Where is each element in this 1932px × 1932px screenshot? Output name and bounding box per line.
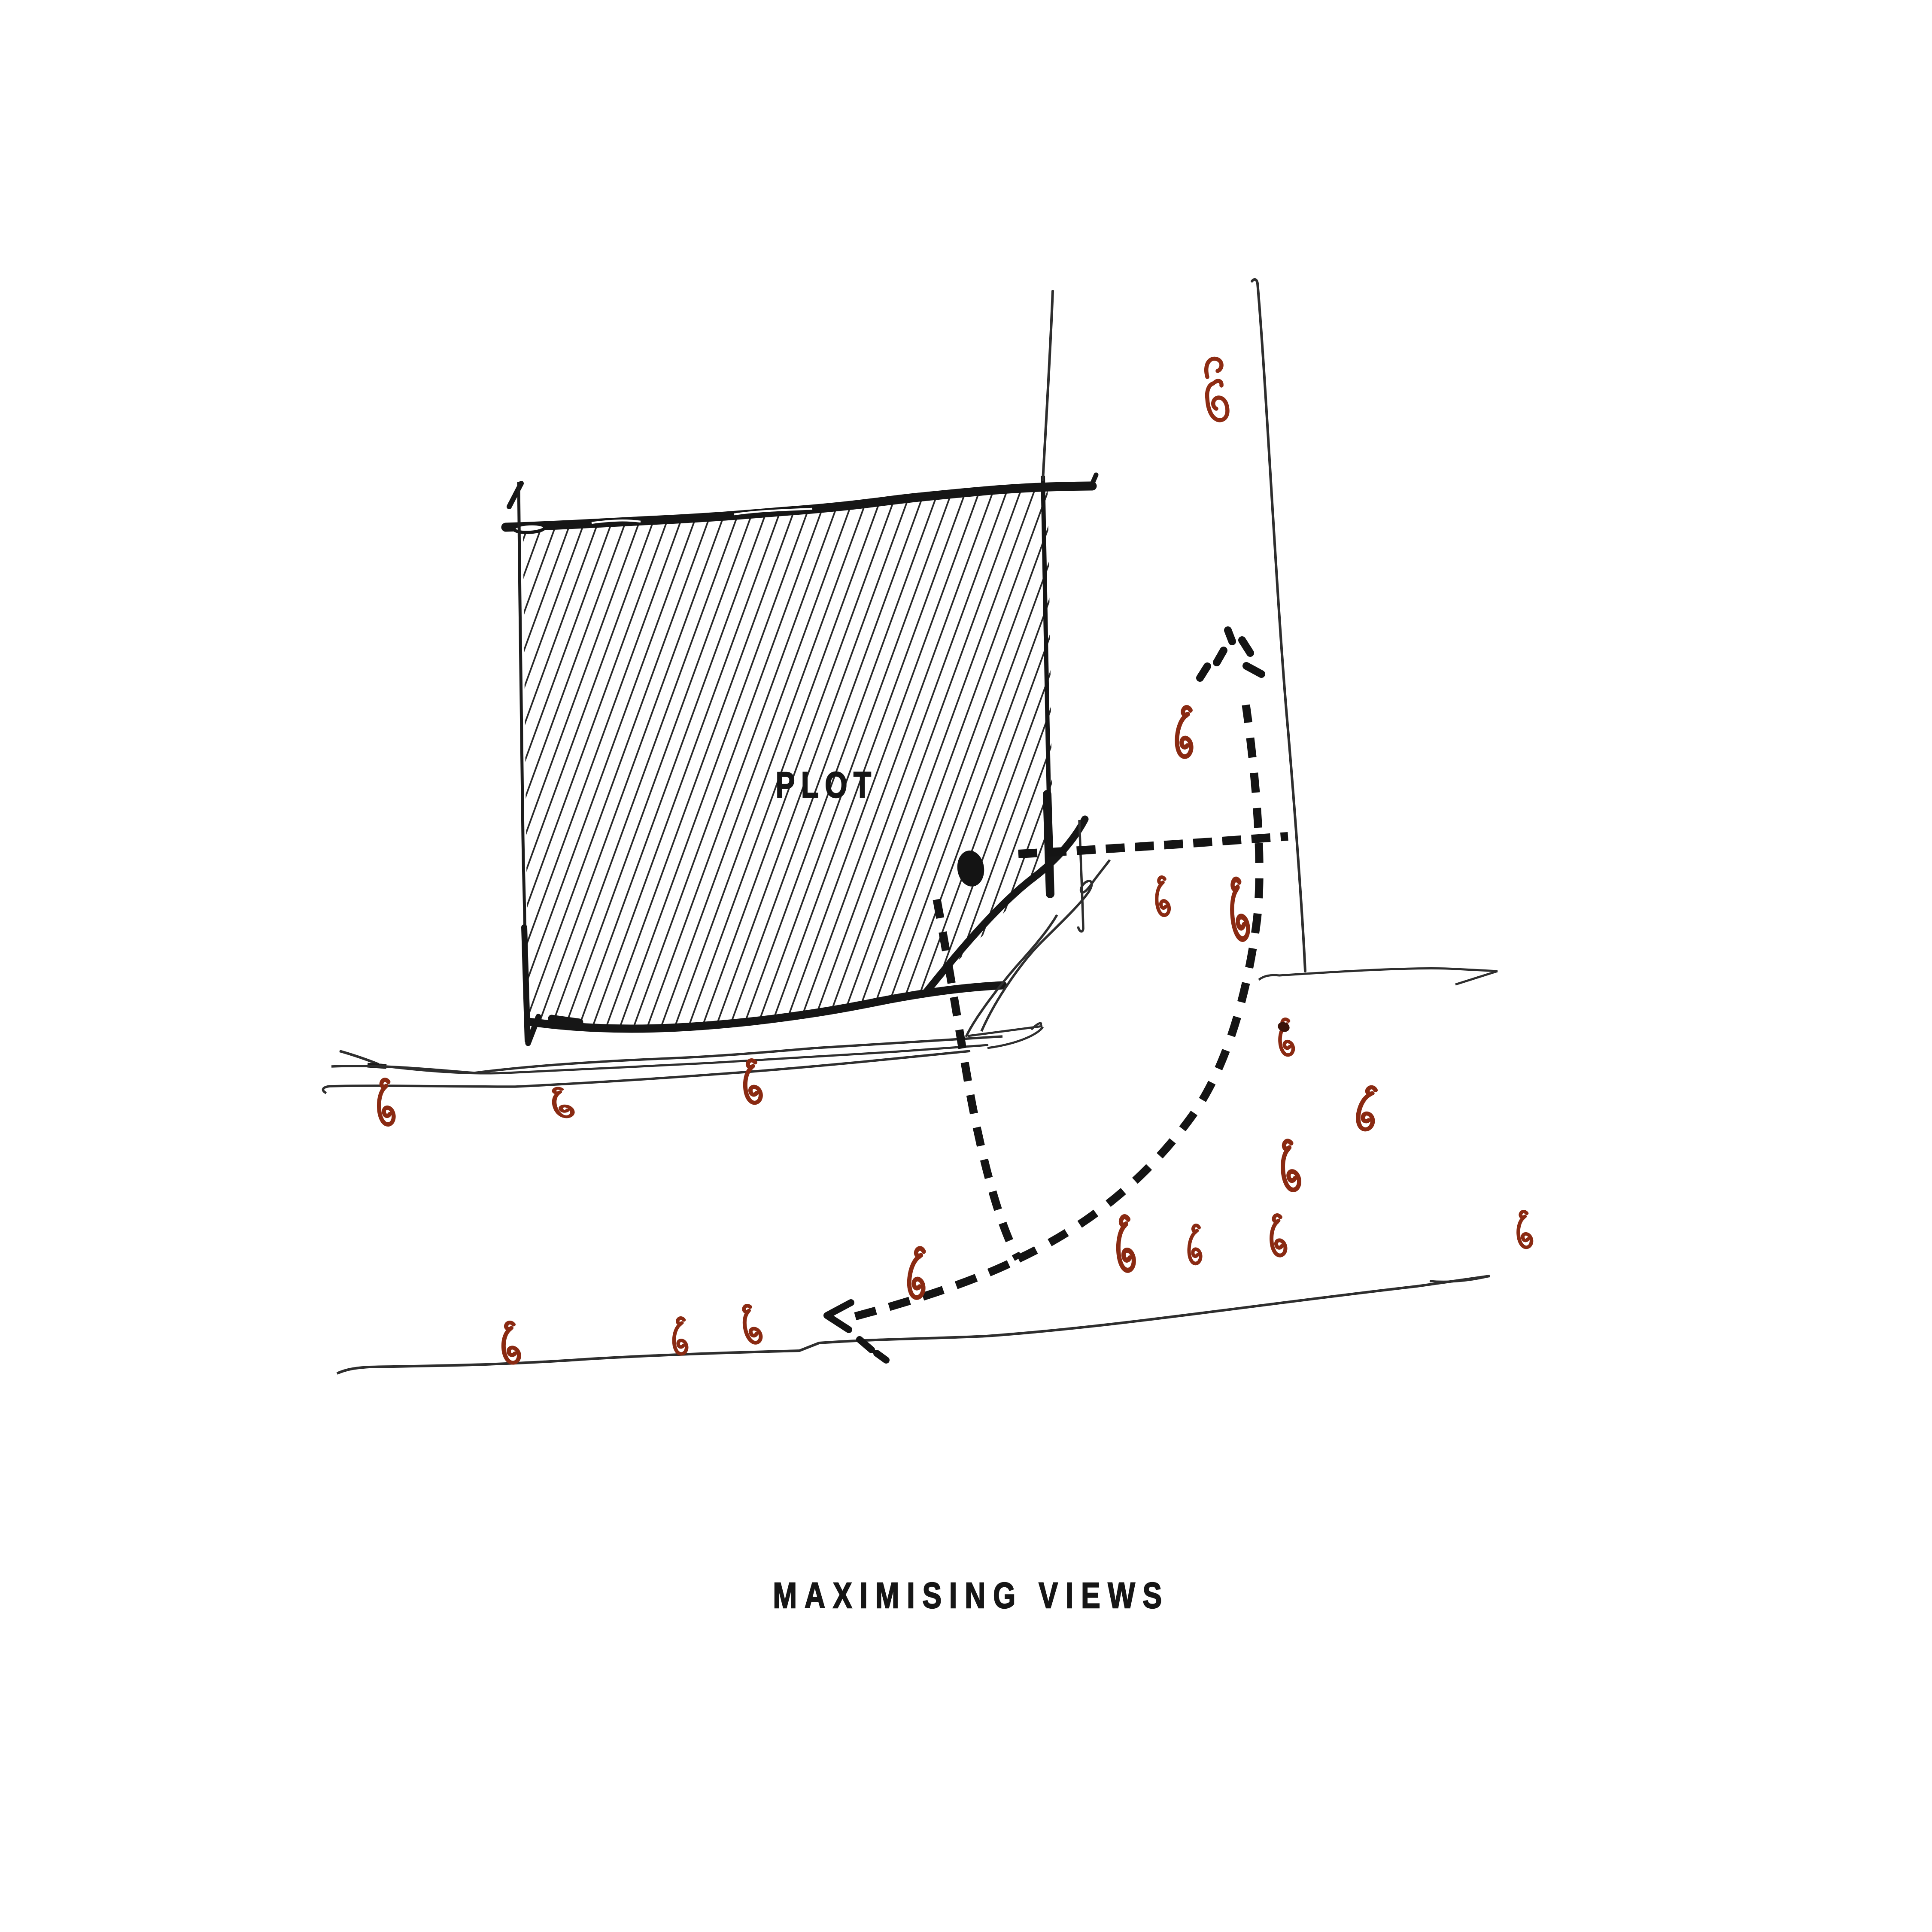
svg-text:PLOT: PLOT [776,765,878,805]
svg-text:MAXIMISING VIEWS: MAXIMISING VIEWS [773,1576,1170,1616]
